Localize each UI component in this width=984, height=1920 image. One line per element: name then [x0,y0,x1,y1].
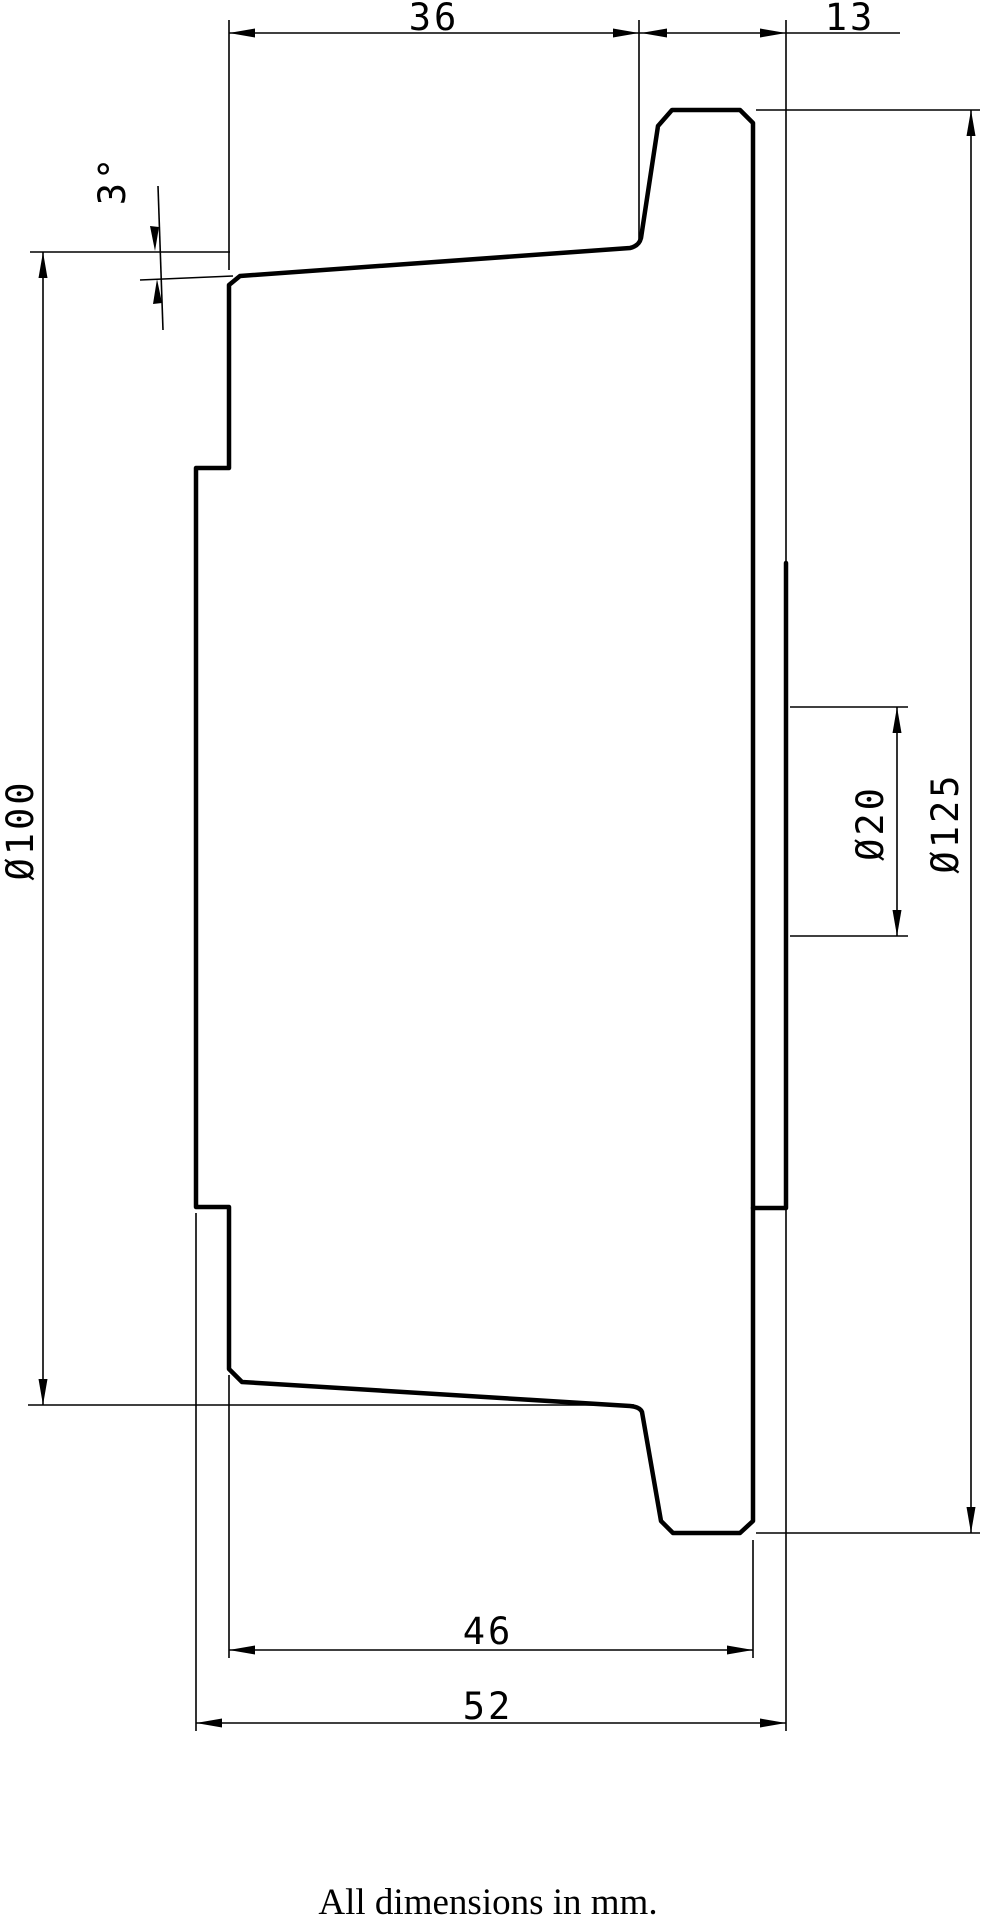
arrowhead [967,110,976,136]
dimension-label-3deg: 3° [91,155,134,206]
arrowhead [893,910,902,936]
angle-dimension-line [158,186,163,330]
dimension-tread-diameter: Ø100 [0,252,634,1405]
dimension-draft-angle: 3° [30,155,233,330]
arrowhead [967,1507,976,1533]
arrowhead [760,29,786,38]
units-note: All dimensions in mm. [318,1882,657,1920]
arrowhead [229,1646,255,1655]
angle-reference-sloped [140,276,233,280]
dimension-top-width: 36 [229,0,639,270]
dimension-bore-diameter: Ø20 [790,707,908,936]
dimension-label-52: 52 [463,1685,514,1728]
arrowhead [641,29,667,38]
wheel-profile-outline [196,110,753,1533]
dimension-label-13: 13 [825,0,876,39]
hub-boss-right-edge [753,563,786,1208]
dimension-label-46: 46 [463,1610,514,1653]
wheel-cross-section-drawing: 36 13 3° Ø100 Ø20 [0,0,984,1920]
dimension-body-width: 46 [229,1375,753,1658]
arrowhead [893,707,902,733]
arrowhead [613,29,639,38]
arrowhead [39,1379,48,1405]
arrowhead [196,1719,222,1728]
dimension-label-d125: Ø125 [924,772,967,873]
dimension-flange-offset: 13 [639,0,900,563]
arrowhead [150,226,159,251]
arrowhead [229,29,255,38]
arrowhead [760,1719,786,1728]
drawing-canvas: 36 13 3° Ø100 Ø20 [0,0,984,1920]
arrowhead [727,1646,753,1655]
wheel-profile [196,110,786,1533]
dimension-label-d20: Ø20 [849,785,892,861]
dimension-label-36: 36 [409,0,460,39]
dimension-label-d100: Ø100 [0,779,42,880]
arrowhead [39,252,48,278]
